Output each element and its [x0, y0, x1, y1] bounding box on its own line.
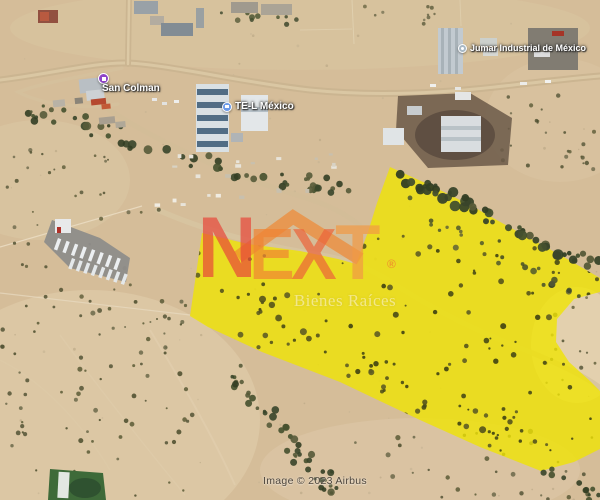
poi-san-colman[interactable]: San Colman: [98, 73, 160, 94]
business-pin-icon[interactable]: [222, 102, 232, 112]
poi-label-san-colman[interactable]: San Colman: [102, 83, 160, 94]
poi-jumar[interactable]: Jumar Industrial de México: [458, 43, 586, 53]
satellite-map: [0, 0, 600, 500]
imagery-attribution: Image © 2023 Airbus: [235, 475, 395, 487]
farm-field: [48, 469, 106, 500]
poi-label-jumar[interactable]: Jumar Industrial de México: [470, 43, 586, 53]
business-pin-icon[interactable]: [458, 44, 467, 53]
poi-tel-mexico[interactable]: TE-L México: [222, 101, 294, 112]
poi-label-tel-mexico[interactable]: TE-L México: [235, 101, 294, 112]
satellite-view[interactable]: San Colman TE-L México Jumar Industrial …: [0, 0, 600, 500]
